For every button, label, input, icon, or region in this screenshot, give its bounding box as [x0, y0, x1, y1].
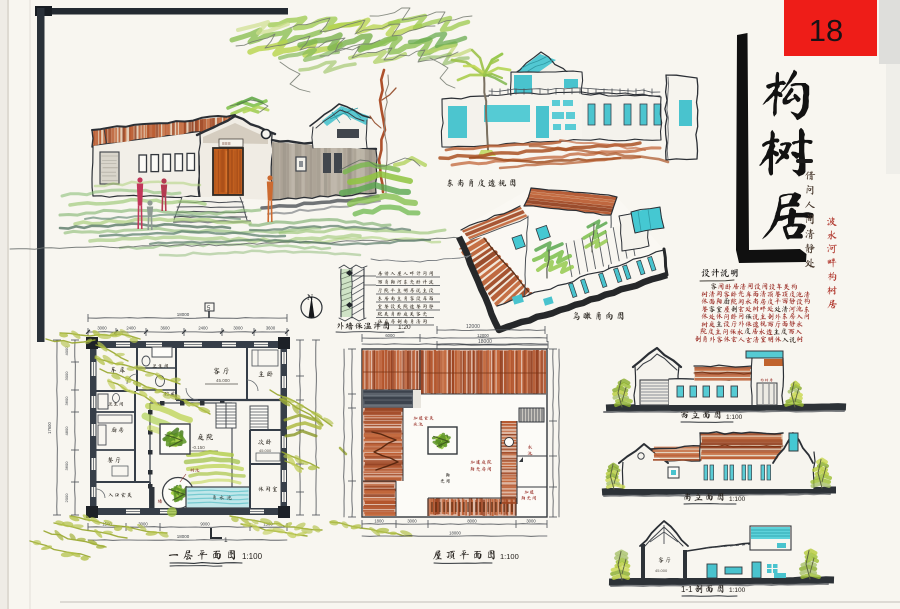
svg-text:2000: 2000 — [64, 493, 69, 503]
svg-text:1:20: 1:20 — [398, 324, 411, 331]
svg-text:N: N — [307, 292, 313, 302]
svg-text:3600: 3600 — [160, 326, 170, 331]
svg-text:45.000: 45.000 — [216, 378, 230, 383]
svg-text:9000: 9000 — [200, 522, 210, 527]
svg-text:6000: 6000 — [385, 333, 395, 338]
svg-text:1800: 1800 — [374, 519, 384, 524]
svg-text:≡≡≡: ≡≡≡ — [222, 141, 231, 147]
svg-text:8000: 8000 — [467, 519, 477, 524]
svg-text:3600: 3600 — [64, 396, 69, 406]
svg-text:3000: 3000 — [233, 326, 243, 331]
svg-text:18000: 18000 — [177, 312, 190, 317]
svg-text:1:100: 1:100 — [242, 552, 263, 561]
svg-text:1:100: 1:100 — [729, 587, 746, 594]
svg-text:1: 1 — [224, 537, 228, 544]
svg-text:1:100: 1:100 — [500, 552, 519, 561]
svg-text:18000: 18000 — [177, 534, 190, 539]
svg-text:12000: 12000 — [466, 324, 480, 330]
svg-text:1:100: 1:100 — [729, 496, 746, 503]
svg-text:18000: 18000 — [449, 531, 461, 536]
svg-text:1-1: 1-1 — [681, 585, 693, 594]
svg-text:3000: 3000 — [526, 519, 536, 524]
svg-text:18: 18 — [809, 13, 843, 48]
svg-text:-0.150: -0.150 — [192, 445, 205, 450]
svg-text:2400: 2400 — [198, 326, 208, 331]
svg-text:2400: 2400 — [126, 326, 136, 331]
svg-text:12000: 12000 — [477, 333, 489, 338]
svg-text:3600: 3600 — [266, 326, 276, 331]
svg-text:4800: 4800 — [64, 426, 69, 436]
svg-text:3000: 3000 — [407, 519, 417, 524]
svg-text:3000: 3000 — [64, 371, 69, 381]
svg-text:45.000: 45.000 — [655, 568, 668, 573]
svg-text:45.000: 45.000 — [259, 448, 272, 453]
svg-text:3000: 3000 — [97, 326, 107, 331]
svg-text:17600: 17600 — [47, 422, 52, 434]
svg-text:3600: 3600 — [64, 461, 69, 471]
svg-text:1:100: 1:100 — [726, 414, 743, 421]
